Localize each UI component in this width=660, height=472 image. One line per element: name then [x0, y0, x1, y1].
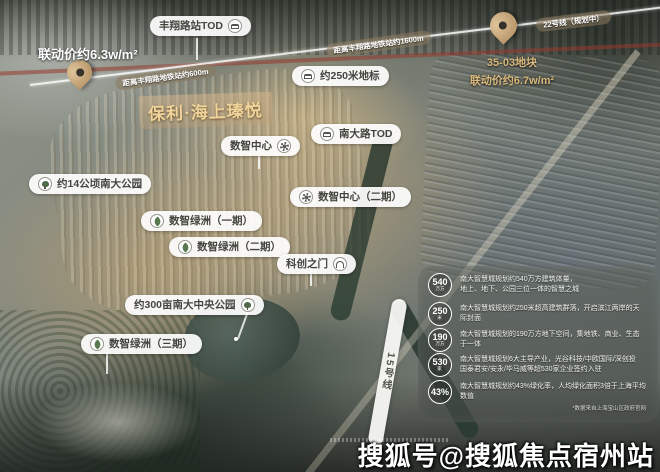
- map-label-digital-oasis-phase3: 数智绿洲（三期）: [81, 334, 202, 354]
- stat-row: 530 家 南大智慧城规划6大主导产业，光谷科技/中欧国际/深创投 国泰君安/安…: [428, 353, 648, 377]
- connector-dot: [234, 337, 238, 341]
- stat-circle: 190 万方: [428, 328, 452, 352]
- gear-icon: [299, 190, 313, 204]
- project-name-plate: 保利·海上瑧悦: [138, 92, 272, 130]
- leaf-icon: [178, 240, 192, 254]
- stat-desc: 南大智慧城规划约540万方建筑体量， 地上、地下、公园三位一体的智慧之城: [460, 275, 646, 296]
- stat-value: 43%: [431, 388, 449, 397]
- label-text: 数智绿洲（一期）: [169, 216, 253, 227]
- project-name: 保利·海上瑧悦: [148, 101, 263, 124]
- label-text: 南大路TOD: [339, 129, 392, 140]
- plot-price-block: 35-03地块 联动价约6.7w/m²: [452, 54, 572, 88]
- map-label-digital-oasis-phase1: 数智绿洲（一期）: [141, 211, 262, 231]
- stat-unit: 家: [438, 367, 443, 372]
- label-text: 约250米地标: [320, 71, 380, 82]
- stat-desc: 南大智慧城规划约43%绿化率，人均绿化面积3倍于上海平均数值: [460, 382, 646, 403]
- map-label-nandalu-tod: 南大路TOD: [311, 124, 401, 144]
- stat-circle: 530 家: [428, 353, 452, 377]
- map-label-fengxiang-station-tod: 丰翔路站TOD: [150, 16, 251, 36]
- price-label-left: 联动价约6.3w/m²: [38, 44, 138, 63]
- label-text: 科创之门: [286, 259, 328, 270]
- stat-desc: 南大智慧城规划约250米超高建筑群落，开启滨江两岸的天际封面: [460, 304, 646, 325]
- promo-map-image: 距离丰翔路地铁站约600m 距离丰翔路地铁站约1600m 22号线（规划中） 1…: [0, 0, 660, 472]
- stat-row: 540 万方 南大智慧城规划约540万方建筑体量， 地上、地下、公园三位一体的智…: [428, 273, 648, 297]
- leaf-icon: [90, 337, 104, 351]
- connector-line: [258, 156, 260, 169]
- sohu-watermark: 搜狐号@搜狐焦点宿州站: [358, 436, 654, 472]
- label-text: 数智绿洲（三期）: [109, 339, 193, 350]
- stat-row: 250 米 南大智慧城规划约250米超高建筑群落，开启滨江两岸的天际封面: [428, 302, 648, 326]
- label-text: 数智中心: [230, 141, 272, 152]
- stat-row: 43% 南大智慧城规划约43%绿化率，人均绿化面积3倍于上海平均数值: [428, 380, 648, 404]
- gear-icon: [277, 139, 291, 153]
- map-label-digital-center-phase2: 数智中心（二期）: [290, 187, 411, 207]
- stat-row: 190 万方 南大智慧城规划的190万方地下空间，集地铁、商业、生态于一体: [428, 328, 648, 352]
- stat-unit: 米: [438, 316, 443, 321]
- stat-unit: 万方: [435, 287, 444, 292]
- label-text: 丰翔路站TOD: [159, 21, 223, 32]
- metro-icon: [320, 127, 334, 141]
- tree-icon: [38, 177, 52, 191]
- map-label-digital-oasis-phase2: 数智绿洲（二期）: [169, 237, 290, 257]
- stats-footnote: *数据来自上海宝山区政府官网: [572, 404, 646, 412]
- map-label-central-park-300mu: 约300亩南大中央公园: [125, 295, 264, 315]
- connector-line: [106, 352, 108, 374]
- leaf-icon: [150, 214, 164, 228]
- map-label-250m-landmark: 约250米地标: [292, 66, 389, 86]
- plot-number-label: 35-03地块: [452, 54, 572, 70]
- metro-icon: [228, 19, 242, 33]
- stat-circle: 540 万方: [428, 273, 452, 297]
- metro-icon: [301, 69, 315, 83]
- label-text: 数智绿洲（二期）: [197, 242, 281, 253]
- stat-circle: 43%: [428, 380, 452, 404]
- stat-desc: 南大智慧城规划的190万方地下空间，集地铁、商业、生态于一体: [460, 330, 646, 351]
- label-text: 数智中心（二期）: [318, 192, 402, 203]
- gate-icon: [333, 257, 347, 271]
- price-label-right: 联动价约6.7w/m²: [452, 72, 572, 88]
- stat-circle: 250 米: [428, 302, 452, 326]
- label-text: 约14公顷南大公园: [57, 179, 142, 190]
- map-label-nanda-park-14ha: 约14公顷南大公园: [29, 174, 151, 194]
- stat-unit: 万方: [435, 342, 444, 347]
- stats-panel: 540 万方 南大智慧城规划约540万方建筑体量， 地上、地下、公园三位一体的智…: [418, 266, 658, 422]
- tree-icon: [241, 298, 255, 312]
- label-text: 约300亩南大中央公园: [134, 300, 236, 311]
- stat-desc: 南大智慧城规划6大主导产业，光谷科技/中欧国际/深创投 国泰君安/安永/毕马威等…: [460, 355, 646, 376]
- map-label-tech-innovation-gate: 科创之门: [277, 254, 356, 274]
- map-label-digital-center: 数智中心: [221, 136, 300, 156]
- connector-line: [196, 38, 198, 60]
